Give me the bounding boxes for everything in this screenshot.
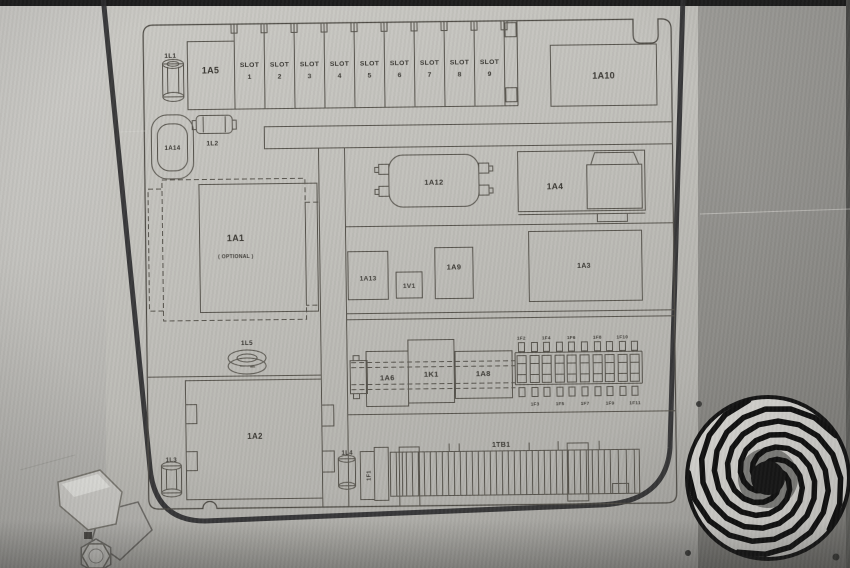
photo-vignette (0, 0, 850, 568)
cabinet-photo: SLOT 1 SLOT 2 SLOT 3 SLOT 4 SLOT 5 SLOT … (0, 0, 850, 568)
